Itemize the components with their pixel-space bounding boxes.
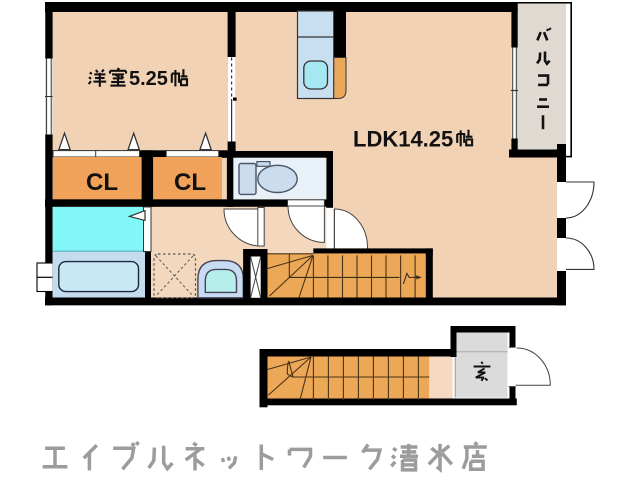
svg-text:CL: CL: [86, 169, 118, 196]
svg-text:5.25: 5.25: [129, 68, 168, 90]
svg-text:LDK14.25: LDK14.25: [353, 127, 453, 152]
svg-text:CL: CL: [174, 169, 206, 196]
